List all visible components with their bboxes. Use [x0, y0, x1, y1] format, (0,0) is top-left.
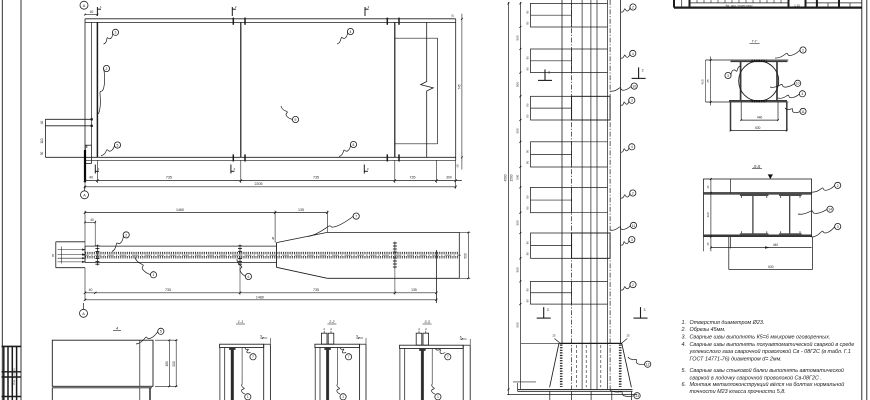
svg-text:40: 40 — [90, 218, 94, 222]
svg-text:135: 135 — [298, 208, 304, 212]
svg-text:500: 500 — [464, 253, 468, 259]
svg-text:Отверстия диаметром Ø23.: Отверстия диаметром Ø23. — [690, 320, 765, 326]
svg-text:сваркой в лодочку сварочной пр: сваркой в лодочку сварочной проволокой С… — [690, 374, 822, 381]
svg-text:Ав. дор. через реку: Ав. дор. через реку — [726, 4, 753, 8]
svg-text:4: 4 — [631, 145, 633, 149]
svg-text:90: 90 — [525, 10, 529, 14]
svg-text:200: 200 — [172, 361, 176, 367]
svg-text:10: 10 — [632, 85, 636, 89]
svg-text:1: 1 — [342, 395, 344, 399]
svg-text:3: 3 — [644, 308, 646, 312]
svg-text:Обрезы 45мм.: Обрезы 45мм. — [690, 327, 726, 333]
svg-text:2: 2 — [548, 70, 550, 74]
svg-text:4.: 4. — [682, 342, 687, 348]
svg-text:25: 25 — [552, 334, 556, 338]
svg-text:500: 500 — [516, 82, 520, 87]
svg-text:15: 15 — [451, 14, 455, 18]
svg-text:420: 420 — [706, 212, 710, 217]
svg-text:2: 2 — [632, 5, 634, 9]
svg-text:135: 135 — [411, 288, 417, 292]
svg-text:5: 5 — [117, 143, 119, 147]
svg-text:А: А — [83, 193, 86, 197]
svg-text:2: 2 — [106, 67, 108, 71]
svg-text:6: 6 — [247, 275, 249, 279]
svg-text:1: 1 — [153, 273, 155, 277]
svg-text:2.: 2. — [681, 327, 687, 333]
svg-text:500: 500 — [516, 220, 520, 225]
svg-text:300: 300 — [446, 176, 452, 180]
svg-text:11: 11 — [632, 224, 636, 228]
svg-text:13: 13 — [635, 394, 639, 398]
svg-text:40: 40 — [90, 10, 94, 14]
svg-text:А: А — [82, 312, 85, 316]
svg-text:735: 735 — [165, 288, 171, 292]
svg-text:500: 500 — [516, 322, 520, 327]
svg-text:500: 500 — [516, 128, 520, 133]
svg-text:420: 420 — [700, 79, 704, 84]
svg-text:90: 90 — [525, 195, 529, 199]
svg-text:440: 440 — [757, 116, 763, 120]
svg-text:4: 4 — [350, 30, 352, 34]
svg-text:5.: 5. — [682, 368, 687, 374]
svg-text:3: 3 — [115, 31, 117, 35]
svg-text:500: 500 — [516, 35, 520, 40]
svg-text:7: 7 — [252, 355, 254, 359]
svg-text:630: 630 — [755, 126, 761, 130]
svg-text:4: 4 — [632, 52, 634, 56]
svg-text:40: 40 — [89, 288, 93, 292]
svg-text:40: 40 — [40, 121, 44, 125]
svg-text:10: 10 — [796, 82, 800, 86]
svg-text:3.: 3. — [682, 335, 687, 341]
svg-text:3: 3 — [837, 225, 839, 229]
svg-text:3: 3 — [631, 99, 633, 103]
svg-text:1-1: 1-1 — [238, 320, 244, 324]
svg-text:12: 12 — [646, 363, 650, 367]
svg-text:90: 90 — [525, 241, 529, 245]
svg-text:500: 500 — [516, 174, 520, 179]
svg-text:7: 7 — [355, 215, 357, 219]
svg-text:735: 735 — [313, 288, 319, 292]
svg-text:90: 90 — [525, 160, 529, 164]
svg-text:5: 5 — [160, 330, 162, 334]
svg-text:1: 1 — [247, 395, 249, 399]
svg-text:Сварные швы выполнять К5=6 мм,: Сварные швы выполнять К5=6 мм,кроме огов… — [690, 335, 831, 341]
svg-text:Сварные швы выполнять полуавто: Сварные швы выполнять полуавтоматической… — [690, 341, 855, 348]
svg-text:735: 735 — [410, 176, 416, 180]
svg-text:25: 25 — [706, 79, 710, 83]
svg-text:90: 90 — [525, 252, 529, 256]
svg-text:735: 735 — [313, 176, 319, 180]
svg-text:440: 440 — [773, 243, 779, 247]
svg-text:30: 30 — [456, 164, 460, 168]
svg-text:1480: 1480 — [256, 295, 264, 299]
svg-text:3-3: 3-3 — [424, 320, 430, 324]
svg-text:30: 30 — [40, 152, 44, 156]
svg-text:40: 40 — [89, 176, 93, 180]
svg-text:1.: 1. — [682, 320, 687, 326]
svg-text:90: 90 — [525, 103, 529, 107]
svg-text:45: 45 — [51, 254, 55, 258]
svg-text:2: 2 — [632, 191, 634, 195]
svg-text:А: А — [83, 4, 86, 8]
svg-text:Инв. № подл.: Инв. № подл. — [12, 367, 16, 385]
svg-text:2: 2 — [632, 283, 634, 287]
svg-text:ГОСТ 14771-76) диаметром d= 2м: ГОСТ 14771-76) диаметром d= 2мм. — [690, 356, 782, 362]
svg-text:735: 735 — [166, 176, 172, 180]
svg-text:точности М23 класса прочности: точности М23 класса прочности 5,8. — [690, 389, 786, 395]
svg-text:3: 3 — [547, 308, 549, 312]
svg-text:4: 4 — [801, 92, 803, 96]
svg-text:1460: 1460 — [176, 208, 184, 212]
svg-text:90: 90 — [525, 56, 529, 60]
svg-text:3: 3 — [727, 74, 729, 78]
svg-text:630: 630 — [768, 265, 774, 269]
svg-text:11: 11 — [801, 110, 805, 114]
svg-text:2: 2 — [837, 184, 839, 188]
svg-text:90: 90 — [525, 114, 529, 118]
svg-text:1: 1 — [437, 395, 439, 399]
svg-text:8: 8 — [353, 143, 355, 147]
svg-text:500: 500 — [516, 267, 520, 272]
svg-text:6.: 6. — [682, 382, 687, 388]
svg-text:Сварные швы стыковой балки вып: Сварные швы стыковой балки выполнять авт… — [690, 367, 844, 374]
svg-text:2-2: 2-2 — [328, 320, 335, 324]
svg-text:90: 90 — [525, 206, 529, 210]
svg-text:90: 90 — [525, 21, 529, 25]
svg-text:углекислого газа сварочной пр: углекислого газа сварочной проволокой Св… — [689, 348, 851, 355]
svg-text:3: 3 — [631, 238, 633, 242]
svg-text:9: 9 — [295, 118, 297, 122]
svg-text:Монтаж металлоконструкций вёлс: Монтаж металлоконструкций вёлся на болта… — [690, 381, 845, 388]
svg-text:90: 90 — [525, 149, 529, 153]
svg-text:90: 90 — [525, 67, 529, 71]
svg-text:7: 7 — [447, 355, 449, 359]
svg-text:90: 90 — [525, 288, 529, 292]
svg-text:Д-Д: Д-Д — [753, 164, 761, 168]
svg-text:7: 7 — [348, 355, 350, 359]
svg-text:4500: 4500 — [504, 174, 508, 181]
svg-text:90: 90 — [525, 299, 529, 303]
svg-text:1500: 1500 — [509, 174, 513, 181]
svg-text:180: 180 — [165, 361, 169, 367]
svg-text:2: 2 — [642, 68, 644, 72]
svg-text:2205: 2205 — [255, 182, 263, 186]
svg-text:745: 745 — [457, 84, 461, 90]
svg-text:110: 110 — [40, 138, 44, 143]
svg-text:25: 25 — [626, 334, 630, 338]
svg-text:1 25: 1 25 — [794, 4, 800, 8]
svg-text:14: 14 — [828, 208, 832, 212]
svg-text:2: 2 — [802, 48, 804, 52]
svg-text:2: 2 — [125, 233, 127, 237]
svg-text:Г-Г: Г-Г — [752, 40, 758, 44]
